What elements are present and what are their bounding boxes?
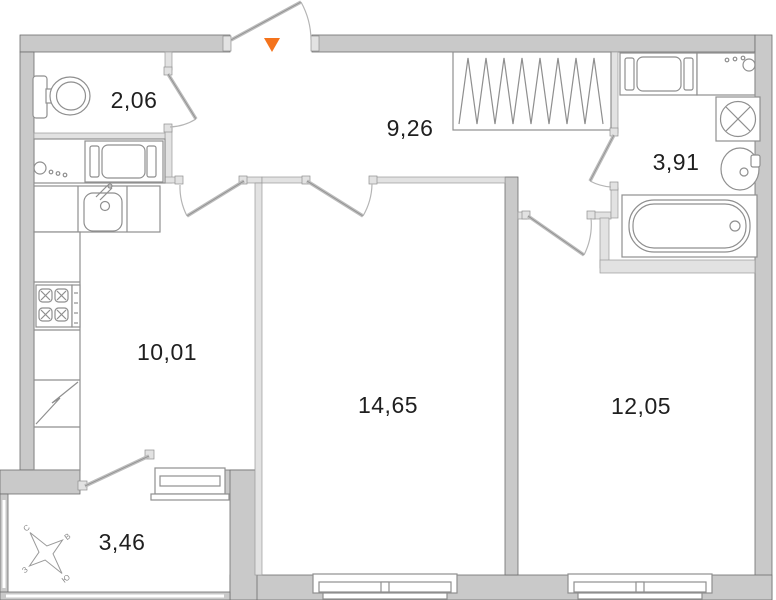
living-room-window (313, 574, 457, 599)
kitchen-washing-machine-icon (85, 141, 163, 182)
wall-divider-kitchen-living (255, 183, 262, 575)
compass-north-label: С (22, 523, 32, 534)
kitchen-area-label: 10,01 (137, 339, 197, 365)
bedroom-area-label: 12,05 (611, 393, 671, 419)
bathroom-sink-icon (721, 148, 760, 190)
hallway-area-label: 9,26 (387, 115, 434, 141)
balcony-door (78, 450, 154, 490)
bathroom-area-label: 3,91 (653, 149, 700, 175)
wall-hall-living-b (375, 177, 505, 183)
wall-wc-right-lower (165, 128, 172, 183)
compass-east-label: В (63, 532, 73, 542)
stove-icon (36, 285, 80, 327)
wc-door (164, 67, 196, 132)
compass-west-label: З (20, 565, 29, 575)
wall-kitchen-bottom-left (0, 470, 80, 494)
floorplan-drawing: С В Ю З 2,06 9,26 3,91 10,01 14,65 12,05… (0, 0, 776, 600)
wc-area-label: 2,06 (111, 87, 158, 113)
ventilation-box-icon (716, 97, 760, 141)
wall-left (20, 52, 34, 470)
bathtub-icon (622, 195, 757, 257)
compass-south-label: Ю (60, 573, 72, 585)
parapet-glazing-left (3, 500, 6, 588)
wall-wc-bottom (34, 133, 165, 139)
wall-bathroom-left-upper (611, 52, 618, 133)
balcony-window (151, 468, 229, 500)
toilet-icon (33, 76, 90, 118)
living-room-door (302, 176, 377, 216)
bathroom-counter (697, 53, 755, 95)
bedroom-window (568, 574, 712, 599)
bathroom-washing-machine-icon (620, 53, 697, 95)
wall-divider-living-bedroom (505, 177, 518, 575)
kitchen-counter-column (34, 232, 80, 470)
balcony-area-label: 3,46 (99, 529, 146, 555)
wall-bathroom-left-lower (611, 188, 618, 218)
wardrobe (453, 52, 611, 130)
wall-hall-living-a (262, 177, 305, 183)
wall-bathroom-bottom (600, 260, 755, 273)
parapet-glazing-bottom (6, 595, 224, 598)
kitchen-door (175, 176, 247, 216)
wall-top-left (20, 35, 230, 52)
bedroom-door (522, 211, 595, 255)
bathroom-door (590, 128, 618, 190)
floorplan-canvas: С В Ю З 2,06 9,26 3,91 10,01 14,65 12,05… (0, 0, 776, 600)
wall-balcony-corner (230, 470, 257, 600)
entrance-marker-icon (264, 38, 280, 52)
compass-rose-icon: С В Ю З (1, 506, 93, 600)
wall-top-right (312, 35, 755, 52)
living-room-area-label: 14,65 (358, 392, 418, 418)
